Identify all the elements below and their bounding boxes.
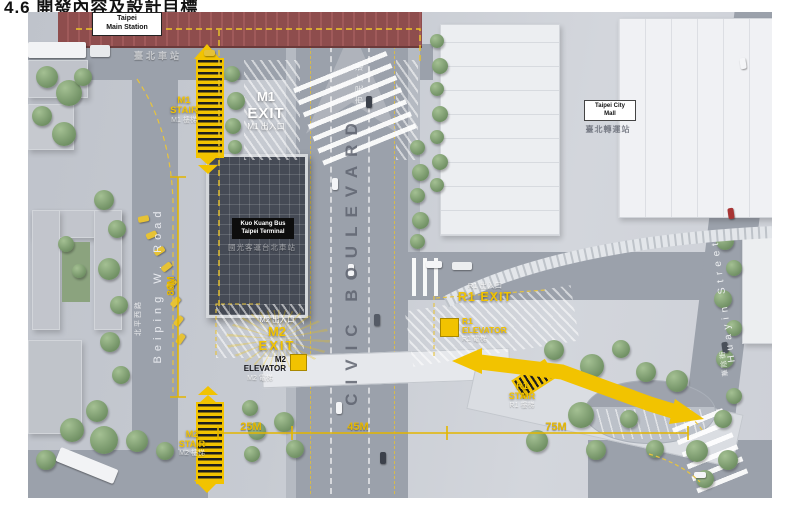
label-zh: R1 電梯 [462, 336, 522, 344]
r1-exit-label: R1 EXIT [442, 291, 528, 305]
label-zh: M1 出入口 [234, 122, 298, 131]
r1-stair-label: R1 STAIR R1 樓梯 [498, 382, 546, 409]
label-line: EXIT [234, 105, 298, 122]
kuo-kuang-ground-text: 國光客運台北車站 [220, 244, 304, 252]
label-line: ELEVATOR [224, 364, 286, 373]
label-line: EXIT [242, 339, 312, 353]
m2-elevator-zh: M2 電梯 [234, 375, 286, 383]
label-line: Main Station [94, 24, 160, 33]
m2-elevator-label: M2 ELEVATOR [224, 355, 286, 373]
label-line: Mall [586, 111, 634, 119]
m1-stair-label: M1 STAIR M1 樓梯 [162, 96, 206, 125]
taipei-city-mall-zh: 臺北轉運站 [576, 124, 640, 135]
dimension-25m: 25M [221, 421, 281, 433]
beiping-road-zh: 北平西路 [133, 292, 143, 344]
m2-stair-label: M2 STAIR M2 樓梯 [170, 430, 214, 457]
label-line: M2 [242, 325, 312, 339]
pedestrian-flow-arrow [452, 348, 704, 424]
label-line: M1 [234, 90, 298, 105]
taipei-main-station-label: Taipei Main Station [92, 12, 162, 36]
r1-exit-zh: R1 出入口 [448, 282, 522, 290]
site-plan-page: 4.6 開發內容及設計目標 [0, 0, 800, 507]
curb-dashed [649, 454, 700, 482]
label-line: Kuo Kuang Bus [234, 221, 292, 229]
dimension-lines [170, 177, 688, 440]
label-line: Taipei [94, 15, 160, 24]
taipei-main-station-ground-text: 臺北車站 [116, 52, 200, 62]
r1-elevator-label: R1 ELEVATOR R1 電梯 [462, 317, 522, 343]
label-line: Taipei City [586, 103, 634, 111]
civic-boulevard-zh: 市民大道 [354, 50, 366, 114]
label-zh: R1 樓梯 [498, 402, 546, 410]
label-zh: M2 樓梯 [170, 450, 214, 458]
overlay-graphics [28, 12, 772, 498]
label-line: STAIR [170, 440, 214, 450]
m1-exit-label: M1 EXIT M1 出入口 [234, 90, 298, 131]
m2-exit-label: M2 出入口 M2 EXIT [242, 316, 312, 353]
label-line: STAIR [162, 106, 206, 116]
dimension-75m: 75M [526, 421, 586, 433]
dimension-80m: 80M [166, 261, 178, 311]
label-zh: M1 樓梯 [162, 117, 206, 125]
label-line: ELEVATOR [462, 326, 522, 335]
kuo-kuang-terminal-label: Kuo Kuang Bus Taipei Terminal [232, 218, 294, 239]
label-line: STAIR [498, 392, 546, 402]
taipei-city-mall-label: Taipei City Mall [584, 100, 636, 121]
dimension-45m: 45M [328, 421, 388, 433]
label-line: M2 [224, 355, 286, 364]
label-line: Taipei Terminal [234, 229, 292, 237]
site-plan-map: Taipei Main Station 臺北車站 M1 STAIR M1 樓梯 … [28, 12, 772, 498]
